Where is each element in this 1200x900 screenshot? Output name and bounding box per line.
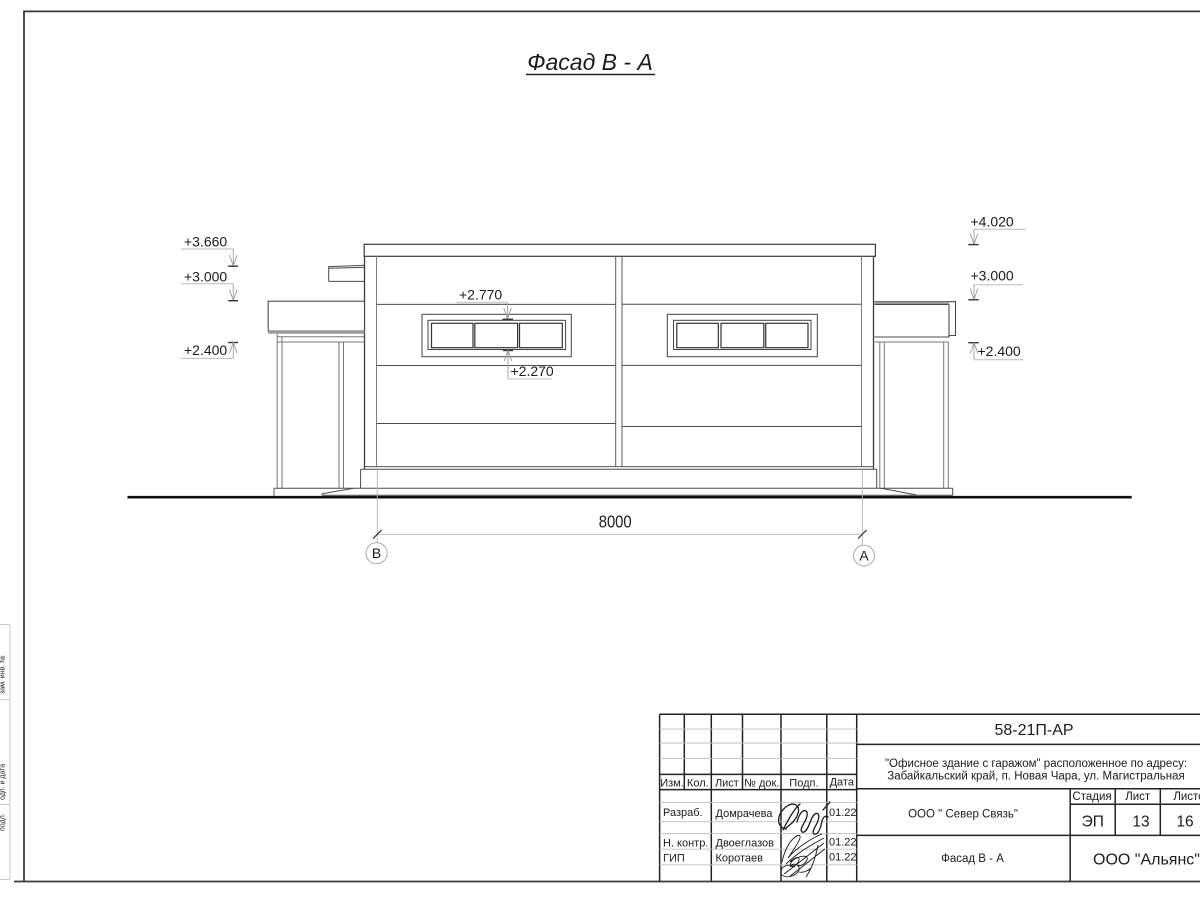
svg-text:Стадия: Стадия (1072, 791, 1111, 803)
svg-text:№ док.: № док. (744, 778, 779, 790)
svg-text:подл.: подл. (0, 813, 7, 831)
svg-text:Кол.: Кол. (687, 778, 709, 790)
svg-text:Лист: Лист (715, 778, 739, 790)
svg-text:Фасад В - А: Фасад В - А (941, 853, 1004, 865)
svg-text:ГИП: ГИП (663, 853, 685, 865)
svg-text:01.22: 01.22 (829, 852, 857, 864)
svg-text:01.22: 01.22 (829, 837, 857, 849)
svg-text:Лист: Лист (1125, 791, 1151, 803)
svg-text:А: А (859, 548, 869, 564)
svg-text:одп. и дата: одп. и дата (0, 764, 7, 800)
svg-text:01.22: 01.22 (829, 807, 857, 819)
svg-text:Дата: Дата (830, 777, 855, 789)
svg-text:Изм.: Изм. (660, 778, 684, 790)
svg-text:ООО "Альянс": ООО "Альянс" (1093, 852, 1200, 869)
svg-text:+4.020: +4.020 (971, 214, 1014, 230)
svg-text:В: В (372, 545, 381, 561)
svg-text:+2.400: +2.400 (978, 343, 1021, 359)
svg-text:Коротаев: Коротаев (716, 853, 764, 865)
svg-text:Листов: Листов (1173, 791, 1200, 803)
svg-text:Подп.: Подп. (789, 778, 818, 790)
svg-text:Домрачева: Домрачева (716, 808, 774, 820)
svg-text:13: 13 (1132, 814, 1149, 831)
svg-text:+2.270: +2.270 (511, 363, 554, 379)
svg-text:Н. контр.: Н. контр. (663, 838, 708, 850)
svg-text:зам. инв. №: зам. инв. № (0, 655, 7, 694)
svg-text:Разраб.: Разраб. (663, 807, 703, 819)
svg-text:+3.000: +3.000 (971, 267, 1014, 283)
svg-text:"Офисное здание с гаражом" рас: "Офисное здание с гаражом" расположенное… (885, 758, 1187, 770)
svg-text:Забайкальский край, п. Новая Ч: Забайкальский край, п. Новая Чара, ул. М… (887, 771, 1185, 783)
svg-text:58-21П-АР: 58-21П-АР (994, 722, 1073, 739)
svg-text:Фасад В - А: Фасад В - А (527, 49, 653, 75)
svg-text:+2.400: +2.400 (184, 342, 227, 358)
svg-text:Двоеглазов: Двоеглазов (716, 838, 775, 850)
svg-text:16: 16 (1176, 814, 1193, 831)
svg-text:ЭП: ЭП (1082, 814, 1104, 831)
svg-text:+3.660: +3.660 (184, 234, 227, 250)
svg-text:+3.000: +3.000 (184, 269, 227, 285)
svg-text:8000: 8000 (599, 512, 632, 532)
svg-text:+2.770: +2.770 (459, 287, 502, 303)
svg-text:ООО " Север Связь": ООО " Север Связь" (908, 809, 1018, 821)
